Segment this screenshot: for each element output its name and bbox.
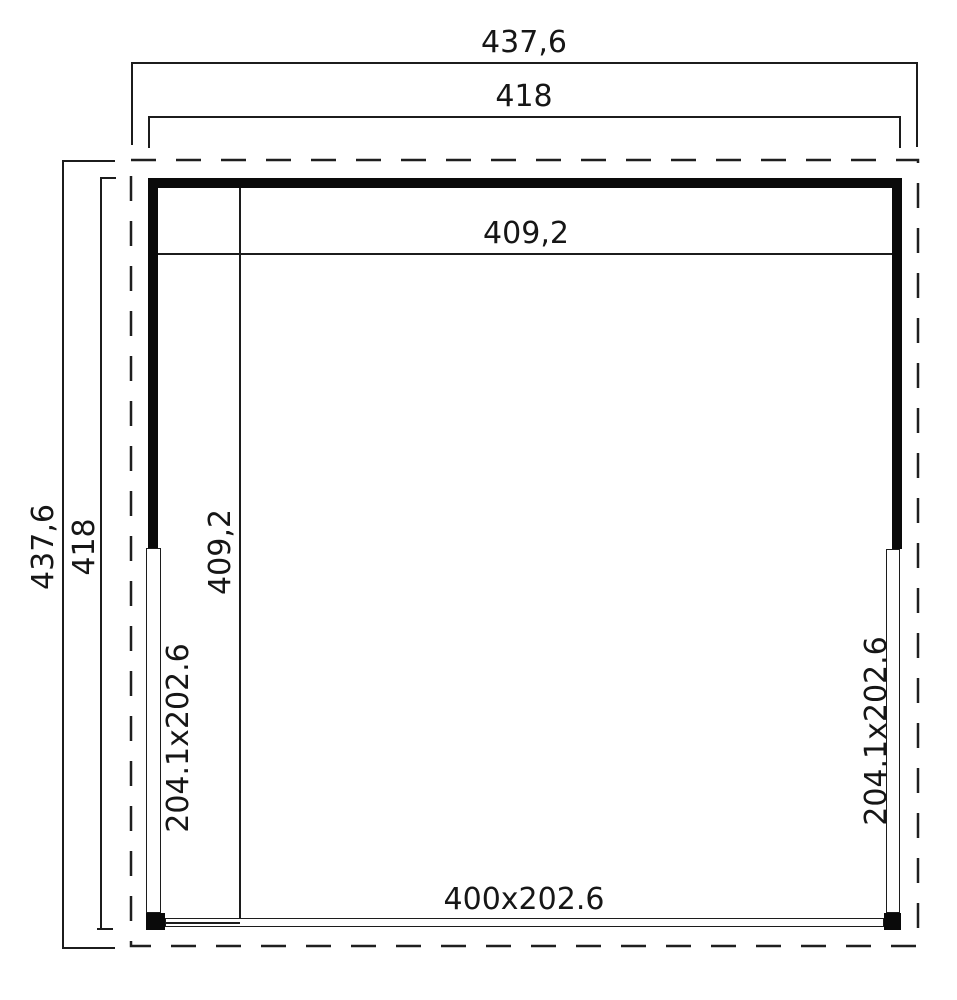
corner-post-right (884, 913, 901, 930)
dim-ext-wall-height-top (100, 177, 116, 179)
dim-label-wall-height: 418 (70, 518, 100, 575)
dim-ext-wall-width-left (148, 116, 150, 148)
corner-post-left (146, 913, 165, 930)
opening-label-right: 204.1x202.6 (862, 636, 892, 826)
opening-frame-front (165, 918, 884, 927)
dim-ext-wall-height-bottom (97, 928, 113, 930)
dim-label-inner-height: 409,2 (206, 509, 236, 595)
wall-right-upper (892, 178, 902, 549)
dim-ext-outer-height-bottom (62, 947, 115, 949)
dim-label-outer-height: 437,6 (29, 504, 59, 590)
dim-line-inner-height (239, 188, 241, 922)
dim-line-inner-width (158, 253, 893, 255)
threshold-detail-line (165, 922, 240, 924)
dim-line-outer-width (131, 62, 918, 64)
floor-plan: 437,6 418 409,2 437,6 418 409,2 204.1x20… (0, 0, 957, 1000)
wall-top (148, 178, 902, 188)
dim-line-wall-width (148, 116, 901, 118)
dim-label-wall-width: 418 (495, 82, 552, 112)
dim-ext-wall-width-right (899, 116, 901, 148)
roof-outline-dashed (0, 0, 957, 1000)
dim-line-outer-height (62, 160, 64, 948)
dim-label-outer-width: 437,6 (481, 28, 567, 58)
dim-ext-outer-width-left (131, 62, 133, 145)
opening-label-left: 204.1x202.6 (164, 643, 194, 833)
opening-label-front: 400x202.6 (444, 885, 605, 915)
dim-label-inner-width: 409,2 (483, 219, 569, 249)
dim-ext-outer-height-top (62, 160, 115, 162)
opening-frame-left (146, 548, 161, 913)
wall-left-upper (148, 178, 158, 548)
dim-ext-outer-width-right (916, 62, 918, 147)
